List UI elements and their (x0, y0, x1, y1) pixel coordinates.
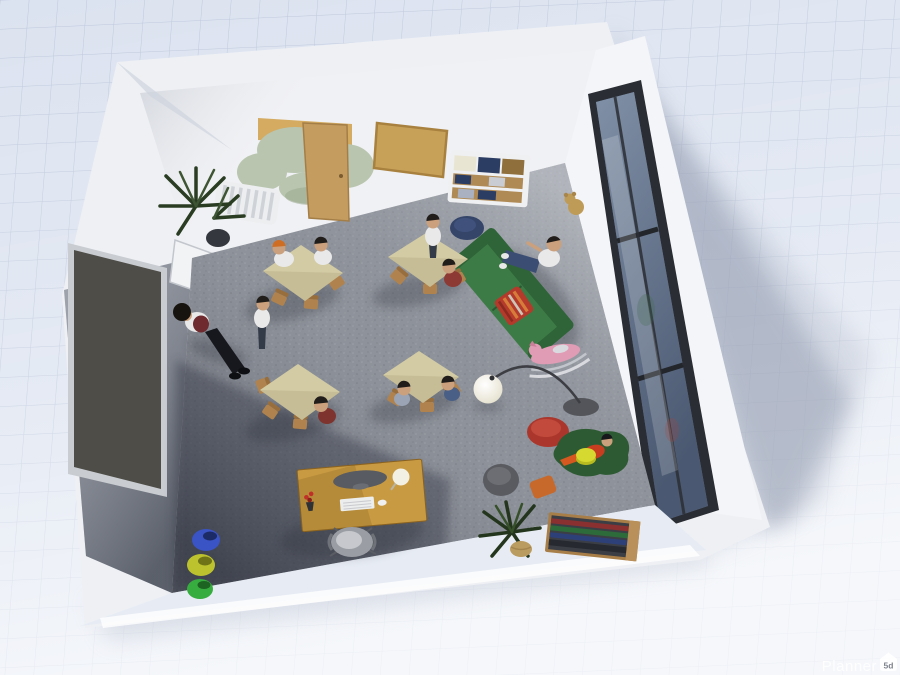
toy-drum[interactable] (576, 448, 596, 465)
scene-render: Planner 5d (0, 0, 900, 675)
shelf-bin[interactable] (501, 159, 524, 175)
cubby-shelf[interactable] (447, 150, 530, 207)
bin-green[interactable] (187, 579, 213, 599)
teacher-hair (173, 303, 191, 321)
pouf-navy[interactable] (450, 216, 484, 240)
lamp-globe (474, 375, 503, 404)
glass-reflection (665, 418, 679, 442)
blackboard[interactable] (68, 243, 167, 497)
watermark-logo-text: 5d (884, 661, 894, 671)
planner5d-3d-viewport[interactable]: Planner 5d (0, 0, 900, 675)
glass-reflection (637, 294, 655, 326)
corkboard[interactable] (374, 123, 447, 177)
shelf-bin[interactable] (454, 155, 477, 171)
shelf-bin[interactable] (478, 157, 501, 173)
bin-blue[interactable] (192, 529, 220, 551)
door-tree-trunk[interactable] (303, 123, 349, 221)
bin-yellow[interactable] (187, 554, 215, 576)
teacher-desk[interactable] (297, 459, 427, 532)
door-knob[interactable] (339, 174, 343, 178)
pouf-gray[interactable] (483, 464, 519, 496)
watermark-text: Planner (822, 658, 877, 675)
